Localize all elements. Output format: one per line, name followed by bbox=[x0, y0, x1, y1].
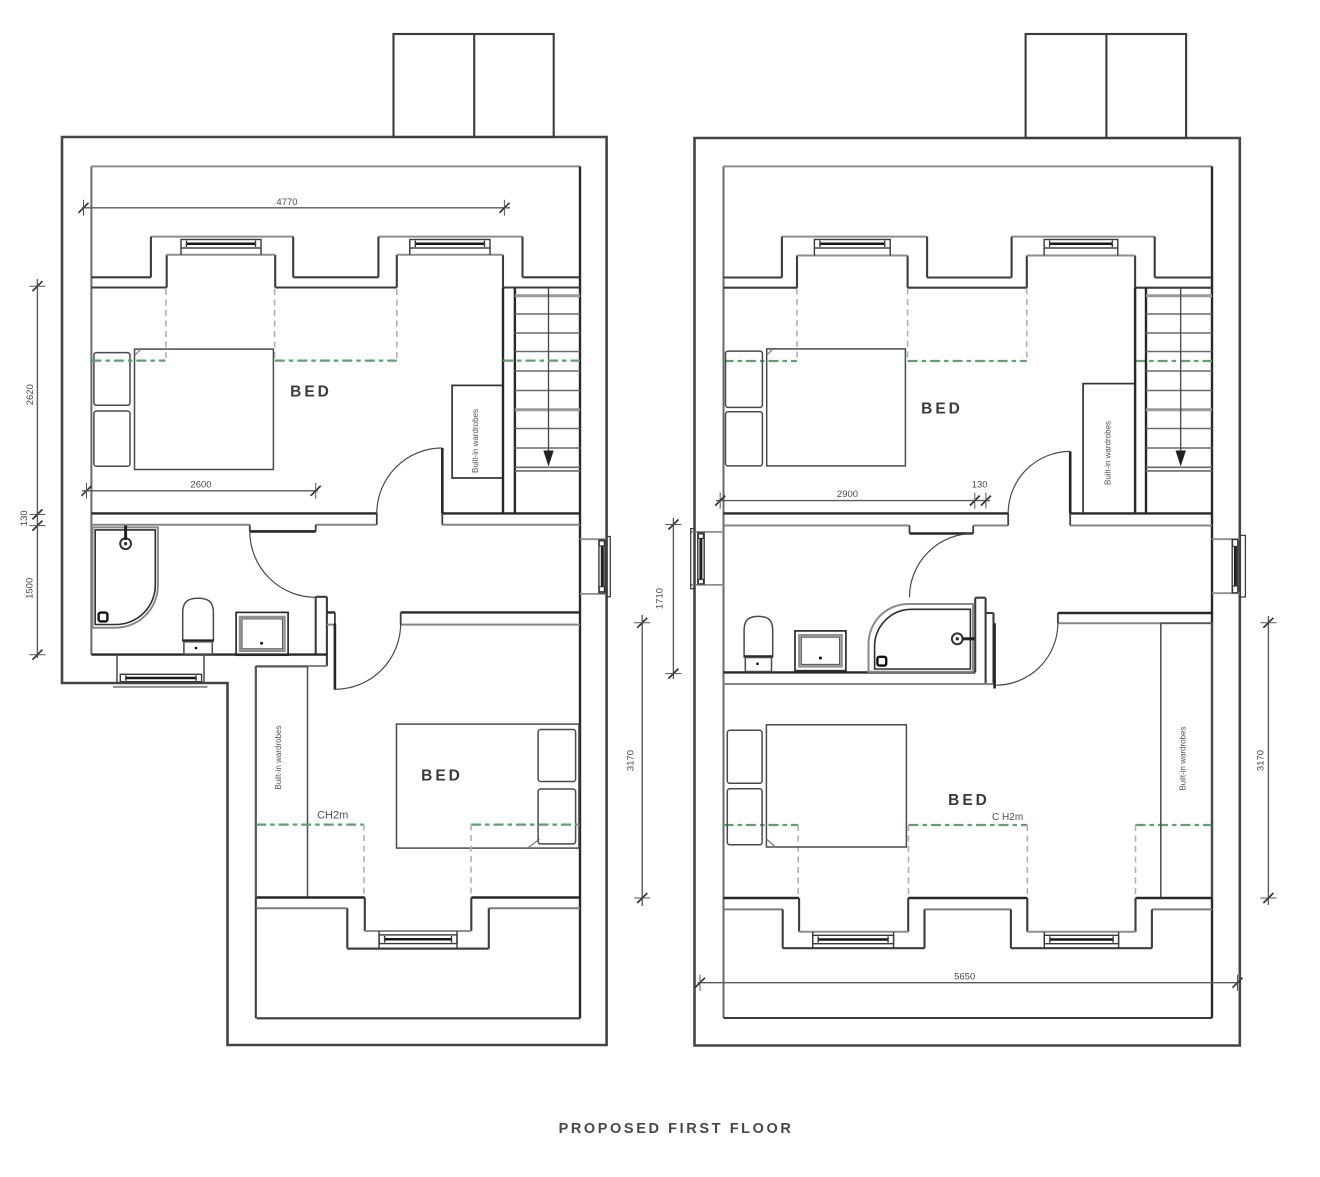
svg-text:C H2m: C H2m bbox=[992, 812, 1023, 823]
svg-text:2620: 2620 bbox=[25, 384, 36, 405]
svg-text:PROPOSED FIRST FLOOR: PROPOSED FIRST FLOOR bbox=[559, 1121, 794, 1137]
svg-text:2900: 2900 bbox=[837, 489, 858, 500]
svg-text:BED: BED bbox=[290, 384, 332, 401]
svg-text:130: 130 bbox=[972, 480, 988, 491]
svg-text:CH2m: CH2m bbox=[317, 810, 348, 822]
svg-text:BED: BED bbox=[921, 401, 963, 418]
svg-text:Built-in wardrobes: Built-in wardrobes bbox=[1178, 726, 1187, 790]
svg-text:3170: 3170 bbox=[626, 750, 637, 771]
svg-text:Built-in wardrobes: Built-in wardrobes bbox=[471, 409, 480, 473]
svg-text:1500: 1500 bbox=[24, 578, 35, 599]
svg-text:3170: 3170 bbox=[1255, 750, 1266, 771]
svg-text:1710: 1710 bbox=[655, 588, 666, 609]
svg-text:Built-in wardrobes: Built-in wardrobes bbox=[274, 725, 283, 789]
svg-text:BED: BED bbox=[421, 767, 463, 784]
svg-text:2600: 2600 bbox=[190, 479, 211, 490]
svg-text:130: 130 bbox=[19, 510, 30, 526]
svg-text:BED: BED bbox=[948, 792, 990, 809]
svg-text:Built-in wardrobes: Built-in wardrobes bbox=[1104, 421, 1113, 485]
svg-text:5650: 5650 bbox=[954, 971, 975, 982]
svg-text:4770: 4770 bbox=[276, 197, 297, 208]
